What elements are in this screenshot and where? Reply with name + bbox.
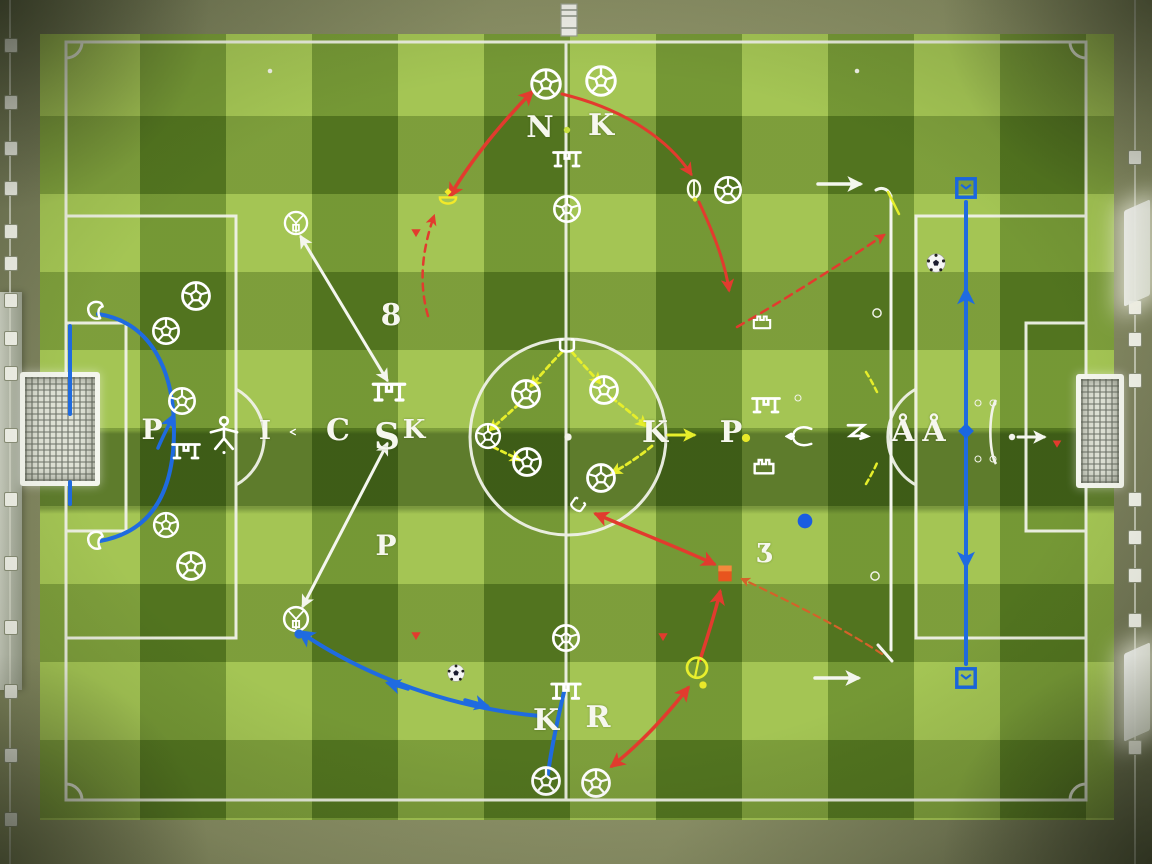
sqo-icon[interactable] (953, 175, 979, 201)
tactic-arrow-red (596, 514, 714, 564)
letter-token-Å[interactable]: Å (891, 417, 914, 447)
oval-icon[interactable] (680, 175, 708, 203)
ball-icon[interactable] (179, 279, 213, 313)
person-icon[interactable] (203, 413, 245, 455)
realball-icon[interactable] (446, 663, 466, 683)
letter-token-P[interactable]: P (720, 418, 743, 448)
tactic-arrow-white (303, 444, 387, 606)
cup-icon[interactable] (552, 332, 582, 362)
gate-icon[interactable] (748, 388, 784, 424)
letter-token-K[interactable]: K (533, 706, 559, 736)
sqo-icon[interactable] (953, 665, 979, 691)
winglet-icon[interactable] (288, 424, 304, 440)
letter-token-K[interactable]: K (403, 417, 426, 443)
ball-icon[interactable] (551, 193, 583, 225)
blob-icon[interactable] (82, 527, 112, 557)
dot-icon[interactable] (564, 127, 571, 134)
letter-token-R[interactable]: R (586, 703, 611, 733)
ball-icon[interactable] (587, 373, 621, 407)
letter-token-P[interactable]: P (375, 532, 396, 560)
realball-icon[interactable] (925, 252, 947, 274)
letter-token-8[interactable]: 8 (381, 301, 402, 331)
tactics-board-scene: NK8ICSKPKPÅÅƷPKR (0, 0, 1152, 864)
brace-icon[interactable] (980, 396, 1004, 468)
tactic-arrow-yellow (612, 446, 652, 473)
castle-icon[interactable] (748, 306, 776, 334)
gate-icon[interactable] (168, 434, 204, 470)
ball-icon[interactable] (150, 315, 182, 347)
cubeball-icon[interactable] (282, 209, 310, 237)
letter-token-Ʒ[interactable]: Ʒ (756, 541, 773, 567)
dot-icon[interactable] (855, 69, 860, 74)
ball-icon[interactable] (579, 766, 613, 800)
tactic-arrow-red (699, 202, 729, 290)
bench-icon[interactable] (557, 2, 581, 38)
diamond-icon[interactable] (956, 421, 976, 441)
tri-icon[interactable] (409, 629, 423, 643)
ball-icon[interactable] (528, 66, 564, 102)
tactic-arrow-blue (98, 314, 174, 541)
dot-icon[interactable] (294, 629, 304, 639)
tactic-arrow-red (423, 216, 434, 316)
gate-icon[interactable] (549, 142, 585, 178)
ring-icon[interactable] (872, 308, 883, 319)
ball-icon[interactable] (550, 622, 582, 654)
letter-token-K[interactable]: K (642, 418, 668, 448)
ringY-icon[interactable] (682, 654, 712, 684)
letter-token-S[interactable]: S (374, 419, 400, 455)
tactic-arrow-red (450, 92, 532, 196)
letter-token-K[interactable]: K (588, 111, 614, 141)
letter-token-Å[interactable]: Å (922, 417, 945, 447)
tactic-arrow-white (301, 237, 387, 380)
sq-icon[interactable] (715, 563, 735, 583)
tri-icon[interactable] (1051, 438, 1064, 451)
ball-icon[interactable] (712, 174, 744, 206)
ball-icon[interactable] (166, 385, 198, 417)
dot-icon[interactable] (742, 434, 751, 443)
dot-icon[interactable] (564, 433, 572, 441)
coneY-icon[interactable] (434, 184, 462, 212)
ball-icon[interactable] (174, 549, 208, 583)
fish-icon[interactable] (785, 422, 815, 452)
ball-icon[interactable] (473, 421, 503, 451)
tri-icon[interactable] (656, 630, 670, 644)
gate-icon[interactable] (368, 372, 410, 414)
dot-icon[interactable] (797, 513, 813, 529)
letter-token-N[interactable]: N (526, 113, 553, 143)
ring-icon[interactable] (794, 394, 802, 402)
tactic-arrow-red (700, 592, 720, 660)
ball-icon[interactable] (583, 63, 619, 99)
dot-icon[interactable] (1009, 434, 1016, 441)
dot-icon[interactable] (268, 69, 273, 74)
tri-icon[interactable] (409, 226, 423, 240)
ring-icon[interactable] (870, 571, 881, 582)
ball-icon[interactable] (529, 764, 563, 798)
castle-icon[interactable] (748, 448, 780, 480)
tactic-arrow-yellow (866, 372, 877, 392)
tactic-arrow-red (612, 688, 688, 766)
letter-token-I[interactable]: I (259, 418, 271, 444)
ball-icon[interactable] (509, 377, 543, 411)
blob-icon[interactable] (82, 297, 112, 327)
tactic-arrow-blue (300, 632, 540, 716)
letter-token-P[interactable]: P (141, 416, 162, 444)
letter-token-C[interactable]: C (326, 416, 350, 446)
flagz-icon[interactable] (843, 419, 873, 449)
dot-icon[interactable] (699, 681, 707, 689)
tactic-arrow-orange (742, 579, 882, 654)
ball-icon[interactable] (510, 445, 544, 479)
ball-icon[interactable] (584, 461, 618, 495)
tactic-arrow-yellow (866, 463, 877, 484)
ball-icon[interactable] (151, 510, 181, 540)
